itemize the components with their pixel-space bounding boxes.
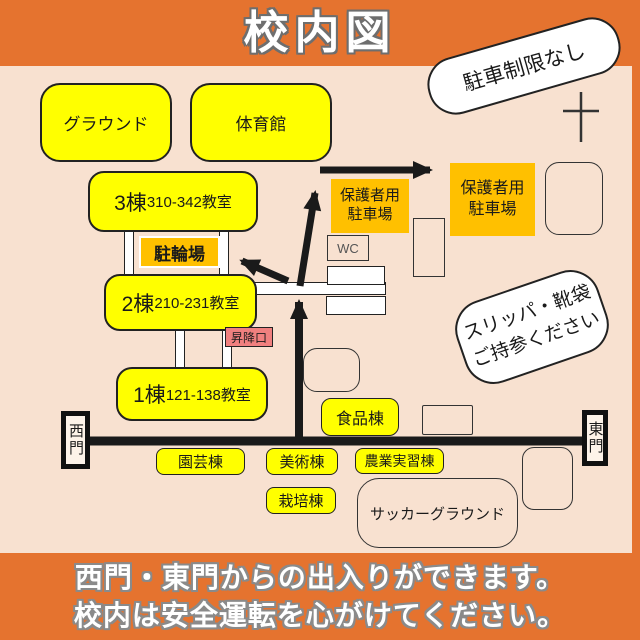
building-art-label: 美術棟 bbox=[279, 451, 324, 472]
building-2-name: 2棟 bbox=[122, 288, 155, 318]
building-gardening-label: 園芸棟 bbox=[178, 451, 223, 472]
building-art: 美術棟 bbox=[266, 448, 338, 475]
building-gym: 体育館 bbox=[190, 83, 332, 162]
corridor-2-1-left bbox=[175, 327, 185, 371]
wc-label: WC bbox=[337, 241, 359, 256]
building-food: 食品棟 bbox=[321, 398, 399, 436]
soccer-ground: サッカーグラウンド bbox=[357, 478, 518, 548]
slippers-note-bubble: スリッパ・靴袋 ご持参ください bbox=[447, 262, 617, 392]
entrance-hall-label: 昇降口 bbox=[231, 329, 267, 346]
building-food-label: 食品棟 bbox=[336, 405, 384, 429]
slippers-note-text: スリッパ・靴袋 ご持参ください bbox=[460, 279, 604, 374]
building-agriculture: 農業実習棟 bbox=[355, 448, 444, 474]
parents-parking-2: 保護者用 駐車場 bbox=[450, 163, 535, 236]
building-1: 1棟121-138教室 bbox=[116, 367, 268, 421]
soccer-ground-label: サッカーグラウンド bbox=[370, 503, 505, 524]
building-ground: グラウンド bbox=[40, 83, 172, 162]
west-gate: 西門 bbox=[61, 411, 90, 469]
building-ground-label: グラウンド bbox=[64, 110, 149, 135]
connector-block-lower bbox=[326, 296, 386, 315]
structure-rounded-northeast bbox=[545, 162, 603, 235]
building-3: 3棟310-342教室 bbox=[88, 171, 258, 232]
building-3-name: 3棟 bbox=[114, 187, 147, 217]
structure-tall-box bbox=[413, 218, 445, 277]
school-map: グラウンド 体育館 3棟310-342教室 駐輪場 2棟210-231教室 昇降… bbox=[0, 0, 640, 640]
structure-rounded-center bbox=[303, 348, 360, 392]
building-2: 2棟210-231教室 bbox=[104, 274, 257, 331]
notice-line-2: 校内は安全運転を心がけてください。 bbox=[74, 597, 566, 635]
building-agriculture-label: 農業実習棟 bbox=[365, 451, 435, 471]
east-gate: 東門 bbox=[582, 410, 608, 466]
west-gate-label: 西門 bbox=[65, 423, 86, 457]
connector-block-upper bbox=[327, 266, 385, 285]
structure-rounded-southeast bbox=[522, 447, 573, 510]
notice-line-1: 西門・東門からの出入りができます。 bbox=[75, 559, 565, 597]
building-gardening: 園芸棟 bbox=[156, 448, 245, 475]
building-3-rooms: 310-342教室 bbox=[147, 191, 232, 212]
east-gate-label: 東門 bbox=[585, 421, 606, 455]
bike-parking-label: 駐輪場 bbox=[154, 240, 205, 265]
parents-parking-2-label: 保護者用 駐車場 bbox=[460, 179, 524, 221]
corridor-3-2-left bbox=[124, 228, 134, 278]
bike-parking: 駐輪場 bbox=[139, 236, 220, 268]
parents-parking-1: 保護者用 駐車場 bbox=[331, 179, 409, 233]
notice-banner: 西門・東門からの出入りができます。 校内は安全運転を心がけてください。 bbox=[0, 553, 640, 640]
wc-box: WC bbox=[327, 235, 369, 261]
structure-square-center bbox=[422, 405, 473, 435]
building-gym-label: 体育館 bbox=[236, 110, 287, 135]
parents-parking-1-label: 保護者用 駐車場 bbox=[340, 187, 400, 225]
corridor-3-2-right bbox=[219, 228, 229, 278]
building-2-rooms: 210-231教室 bbox=[154, 292, 239, 313]
building-1-rooms: 121-138教室 bbox=[166, 384, 251, 405]
route-arrow-diagonal bbox=[300, 193, 315, 286]
right-border-strip bbox=[632, 0, 640, 640]
building-cultivation-label: 栽培棟 bbox=[278, 490, 323, 511]
building-cultivation: 栽培棟 bbox=[266, 487, 336, 514]
entrance-hall: 昇降口 bbox=[225, 327, 273, 347]
building-1-name: 1棟 bbox=[133, 379, 166, 409]
